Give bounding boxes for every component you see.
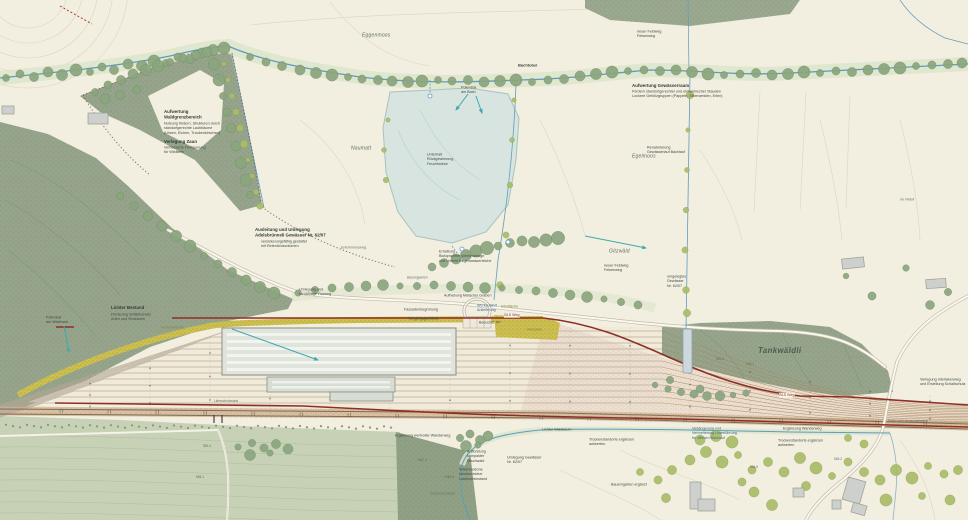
note-bauerngarten: Bauerngarten ergänzt bbox=[611, 482, 647, 487]
note-verlegung-zaun-titel: Verlegung Zaun bbox=[164, 139, 197, 145]
place-name-erlenmoosweg: Erlenmoosweg bbox=[341, 245, 366, 250]
note-umlegung-gewaesser: Umlegung Gewässer Nr. 62/07 bbox=[507, 455, 542, 465]
note-waldgrenze-titel: Aufwertung Waldgrenzbereich bbox=[164, 109, 202, 120]
map-labels: EggenmoosBachtobelPotenzial am Bachneuer… bbox=[0, 0, 968, 520]
place-name-schachenwald: Schachenwald bbox=[430, 491, 455, 496]
note-neuer-feldweg-nord: neuer Feldweg Felsenweg bbox=[637, 29, 661, 39]
note-ergaenzung-wanderweg-west: Ergänzung wertvoller Wanderweg bbox=[395, 433, 450, 438]
note-werkzufahrt: Werkzufahrt Anlieferung bbox=[477, 303, 497, 313]
note-aufforstung: Aufforstung kompakter Mischwald bbox=[467, 449, 486, 463]
note-ergaenzung-wanderweg-ost: Ergänzung Wanderweg bbox=[783, 426, 822, 431]
note-ausleitung-titel: Ausleitung und Umlegung Adelsbrünneli Ge… bbox=[255, 227, 326, 238]
place-name-baumgarten: Baumgarten bbox=[407, 275, 428, 280]
note-ruderalflaeche: Ruderalfläche bbox=[161, 325, 184, 330]
note-aufwertung-gewaesserraum-sub: Fördern standortgerechter und einheimisc… bbox=[632, 89, 722, 99]
tag-bls-weg-west: BLS Weg bbox=[504, 313, 520, 318]
spot-height-6: 546.1 bbox=[746, 362, 754, 366]
spot-height-2: 554.1 bbox=[196, 475, 204, 479]
spot-height-1: 552.4 bbox=[203, 444, 211, 448]
note-lichter-bestand-sub: Förderung lichtliebender Arten und Struk… bbox=[111, 312, 151, 322]
tag-bls-weg-ost: BLS Weg bbox=[779, 393, 795, 398]
spot-height-4: +546.8 bbox=[444, 475, 454, 479]
note-biotopweiher: Erhaltung Biotopweiher Weiheranlage und … bbox=[439, 249, 491, 263]
note-potenzial-waldrand: Potenzial am Waldrand bbox=[46, 315, 68, 325]
note-feuchtwiese: Unterhalt Rückgewinnung Feuchtwiese bbox=[427, 152, 453, 166]
note-waldgrenze-sub: Nutzung fördern, Strukturen durch stando… bbox=[164, 121, 220, 135]
spot-height-3: +547.3 bbox=[417, 458, 427, 462]
note-waldrandzone: Waldrandzone strukturreicher Laubholzbes… bbox=[459, 467, 487, 481]
note-kiesflaeche: Kiesfläche bbox=[501, 304, 518, 309]
note-umlegung-flurweg: Umlegung und Neuanlage Flurweg bbox=[299, 287, 331, 297]
note-neuer-feldweg-ost: neuer Feldweg Felsenweg bbox=[604, 263, 628, 273]
note-trockenstandorte-ost: Trockenstandorte ergänzen aufwerten bbox=[778, 438, 823, 448]
place-name-bachtobel: Bachtobel bbox=[518, 63, 537, 68]
note-kiesplatz: Kiesplatz bbox=[527, 327, 542, 332]
note-besucher-pp: Besucher PP bbox=[479, 320, 501, 325]
note-trockenstandorte-west: Trockenstandorte ergänzen aufwerten bbox=[589, 437, 634, 447]
note-lichter-waldsaum: Lichter Waldsaum bbox=[542, 427, 571, 432]
note-ausleitung-sub: versickerungsfähig gestaltet mit Retenti… bbox=[261, 239, 307, 249]
note-laermschutzwand: Lärmschutzwand bbox=[214, 399, 238, 403]
place-name-tankwaeldli: Tankwäldli bbox=[758, 346, 801, 356]
note-lichter-bestand-titel: Lichter Bestand bbox=[111, 305, 144, 311]
place-name-egelmoos: Egelmoos bbox=[632, 153, 656, 160]
note-umgelegtes-gewaesser: umgelegtes Gewässer Nr. 62/07 bbox=[667, 274, 686, 288]
place-name-gitzwaeld: Gitzwäld bbox=[609, 248, 630, 255]
place-name-im-flueli: im Flüeli bbox=[900, 197, 914, 202]
spot-height-8: 545.2 bbox=[834, 457, 842, 461]
place-name-naumatt: Naumatt bbox=[351, 145, 371, 152]
site-plan-map: EggenmoosBachtobelPotenzial am Bachneuer… bbox=[0, 0, 968, 520]
note-stuetzmauer: Stütz- und Lärmschutzwand bbox=[888, 419, 928, 423]
note-aufwertung-gewaesserraum-titel: Aufwertung Gewässerraum bbox=[632, 83, 689, 89]
note-unterfuehrung: Verlängerung und Verbreiterung Unterführ… bbox=[692, 426, 737, 440]
place-name-eggenmoos: Eggenmoos bbox=[362, 32, 390, 39]
spot-height-5: 545.6 bbox=[716, 357, 724, 361]
note-verlegung-zaun-sub: Verbesserte Feldquerung für Wildtiere bbox=[164, 145, 206, 155]
note-eingangsgebaeude: Eingangsgebäude bbox=[409, 316, 439, 321]
note-aufhebung-muelacher: Aufhebung Mülacher Graben bbox=[444, 293, 492, 298]
note-fassadenbegruenung: Fassadenbegrünung bbox=[404, 307, 438, 312]
note-verlegung-interlakenweg: Verlegung Interlakenweg und Erstellung S… bbox=[920, 377, 965, 387]
spot-height-7: 544.6 bbox=[750, 465, 758, 469]
note-potenzial-am-bach: Potenzial am Bach bbox=[461, 85, 476, 95]
